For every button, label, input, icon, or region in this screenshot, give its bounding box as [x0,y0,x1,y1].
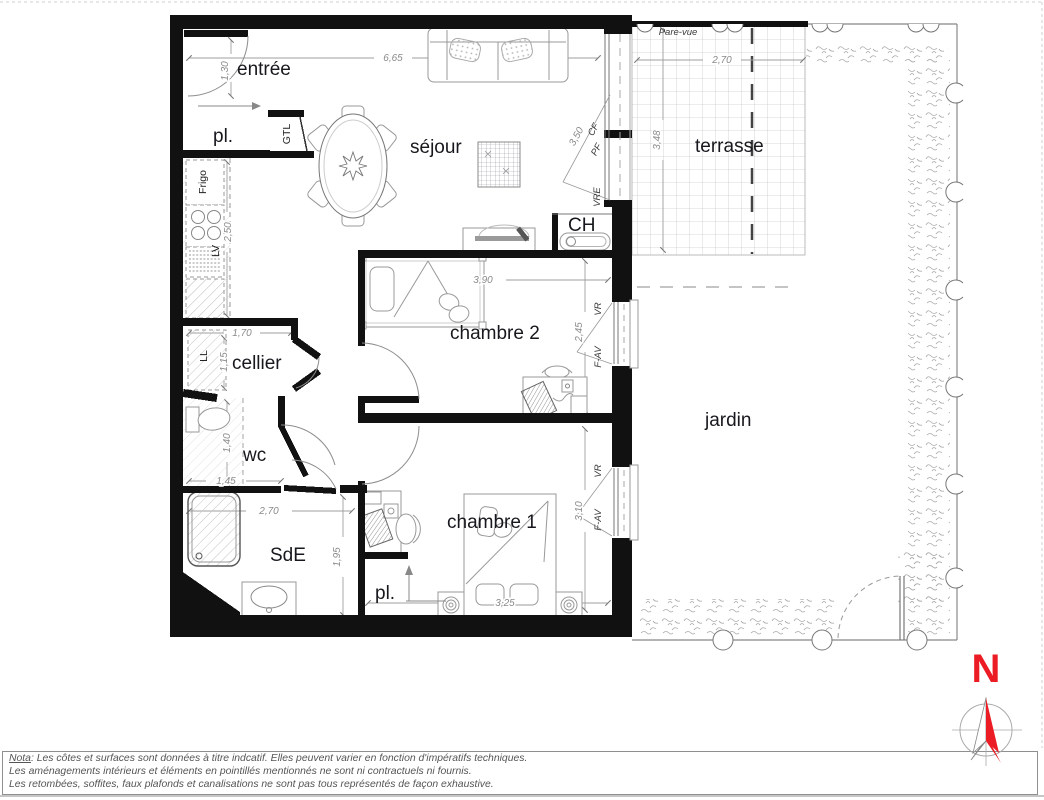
label-wc: wc [242,445,266,466]
floor-plan-page: entrée pl. GTL Frigo LV LL séjour cellie… [0,0,1044,800]
vanity-top [242,582,296,617]
floor-plan-drawing: entrée pl. GTL Frigo LV LL séjour cellie… [0,0,1044,800]
wall-cellier-top [183,318,293,326]
wall-top [183,15,600,29]
label-entree: entrée [237,59,291,80]
north-letter: N [972,647,1001,691]
fence-post [946,474,963,494]
dim-wc-width: 1,45 [216,476,236,487]
window-chambre2 [577,300,638,368]
wall-chambre2-left [358,258,365,346]
wall-closet-entree [183,150,270,158]
fence-post [946,377,963,397]
fence-post [946,568,963,588]
dim-entry-width: 1,30 [220,61,231,81]
fence-post [713,630,733,650]
desk-chambre2 [521,366,587,421]
label-cellier: cellier [232,353,282,374]
arrow-head-icon [405,565,413,575]
wall-sde-chamfer [180,570,240,637]
wall-right-c [612,538,632,637]
table-top [319,114,387,218]
dim-sde-depth: 1,95 [332,547,343,567]
wall-right-b [612,366,632,467]
wall-ch-closet [552,213,558,250]
fence-post [923,24,939,32]
bay-window-sejour [605,34,630,200]
dim-chambre2-depth: 2,45 [574,322,585,343]
wall-wc-chamfer [183,393,217,398]
chambre2-door-arc [362,343,419,399]
cabinet-box [186,279,224,318]
bay-mullion [604,130,632,138]
wc-fixtures [183,398,243,486]
bed-chambre2 [359,254,486,329]
dining-table [306,106,398,226]
nightstand [556,592,582,618]
wc-door-leaf [281,426,306,476]
wall-sde-top [183,486,281,493]
fence-post [827,24,843,32]
dim-terrasse-depth: 3,48 [652,130,663,150]
gate-swing-arc [838,576,901,638]
wall-right-a [612,205,632,302]
tag-vr-chambre1: VR [593,464,604,477]
wall-sejour-chambre2 [358,250,612,258]
window-chambre1 [577,465,638,540]
vanity [242,582,296,617]
window-frame [630,465,638,540]
wall-stub [358,403,365,413]
chambre2-door-leaf [358,396,419,403]
label-sde: SdE [270,545,306,566]
hedge-bottom [640,599,836,638]
dim-chambre2-width: 3,90 [473,275,493,286]
desk-chair [545,366,569,378]
cellier-door-leaf [294,339,319,357]
wall-sde-right [358,481,365,620]
sde-door-leaf [284,488,336,491]
gtl-wall-top [268,110,304,117]
desk-chair [396,514,416,544]
wall-stub-hall [340,485,367,493]
toilet-tank [186,407,199,432]
fence-post [812,630,832,650]
sofa [428,28,568,82]
tag-vr-chambre2: VR [593,302,604,315]
tag-pf: PF [589,141,605,158]
entry-door-leaf [184,30,248,37]
rug-grid [478,142,520,187]
dim-kitchen-depth: 2,50 [223,222,234,243]
tag-vre: VRE [592,187,603,207]
dim-cellier-width: 1,70 [232,328,252,339]
tag-fav-chambre2: F-AV [593,345,604,368]
garden-gate [838,576,904,640]
label-ch: CH [568,215,595,236]
wall-chambre1-chambre2 [358,413,612,423]
fence-post [946,182,963,202]
label-gtl: GTL [281,124,293,145]
label-lv: LV [210,245,222,257]
arrow-head-icon [252,102,261,110]
dim-sde-width: 2,70 [258,506,279,517]
cooktop-box [186,205,224,247]
wall-top-corner [600,15,632,29]
dim-chambre1-depth: 3,10 [574,501,585,521]
jardin-area [626,21,963,650]
label-chambre2: chambre 2 [450,323,540,344]
tag-fav-chambre1: F-AV [593,508,604,531]
tv-screen [475,236,529,241]
label-ll: LL [198,350,210,362]
entry-arrow [198,102,261,110]
pillow [370,267,394,311]
nightstand [438,592,464,618]
dim-chambre1-width: 3,25 [495,598,515,609]
label-pare-vue: Pare-vue [659,27,698,38]
bay-jamb-top [604,29,632,34]
fence-post [907,630,927,650]
gtl-wall-bottom [268,151,314,158]
label-pl-top: pl. [213,126,233,147]
dim-sejour-width: 6,65 [383,53,403,64]
dim-cellier-depth: 1,15 [219,352,230,372]
wall-wc-right [278,396,285,427]
label-frigo: Frigo [197,170,209,194]
label-jardin: jardin [704,410,751,431]
window-frame [630,300,638,368]
dim-wc-depth: 1,40 [222,433,233,453]
fence-post [812,24,828,32]
north-arrow: N [952,647,1022,766]
label-chambre1: chambre 1 [447,512,537,533]
label-pl-bottom: pl. [375,583,395,604]
wall-left [170,15,183,637]
chambre1-door-arc [362,426,419,484]
label-sejour: séjour [410,137,462,158]
fence-post [946,280,963,300]
wall-cellier-angled [294,371,319,389]
gtl-door-line [300,117,307,151]
rug [478,142,520,187]
wall-closet-chambre1 [358,552,408,559]
wall-cellier-jamb [291,318,298,340]
fence-post [908,24,924,32]
label-terrasse: terrasse [695,136,764,157]
mouse-pad [384,504,398,518]
dim-terrasse-width: 2,70 [711,55,732,66]
socket-box [562,380,573,392]
fence-post [946,83,963,103]
desk-chambre1 [359,491,420,554]
